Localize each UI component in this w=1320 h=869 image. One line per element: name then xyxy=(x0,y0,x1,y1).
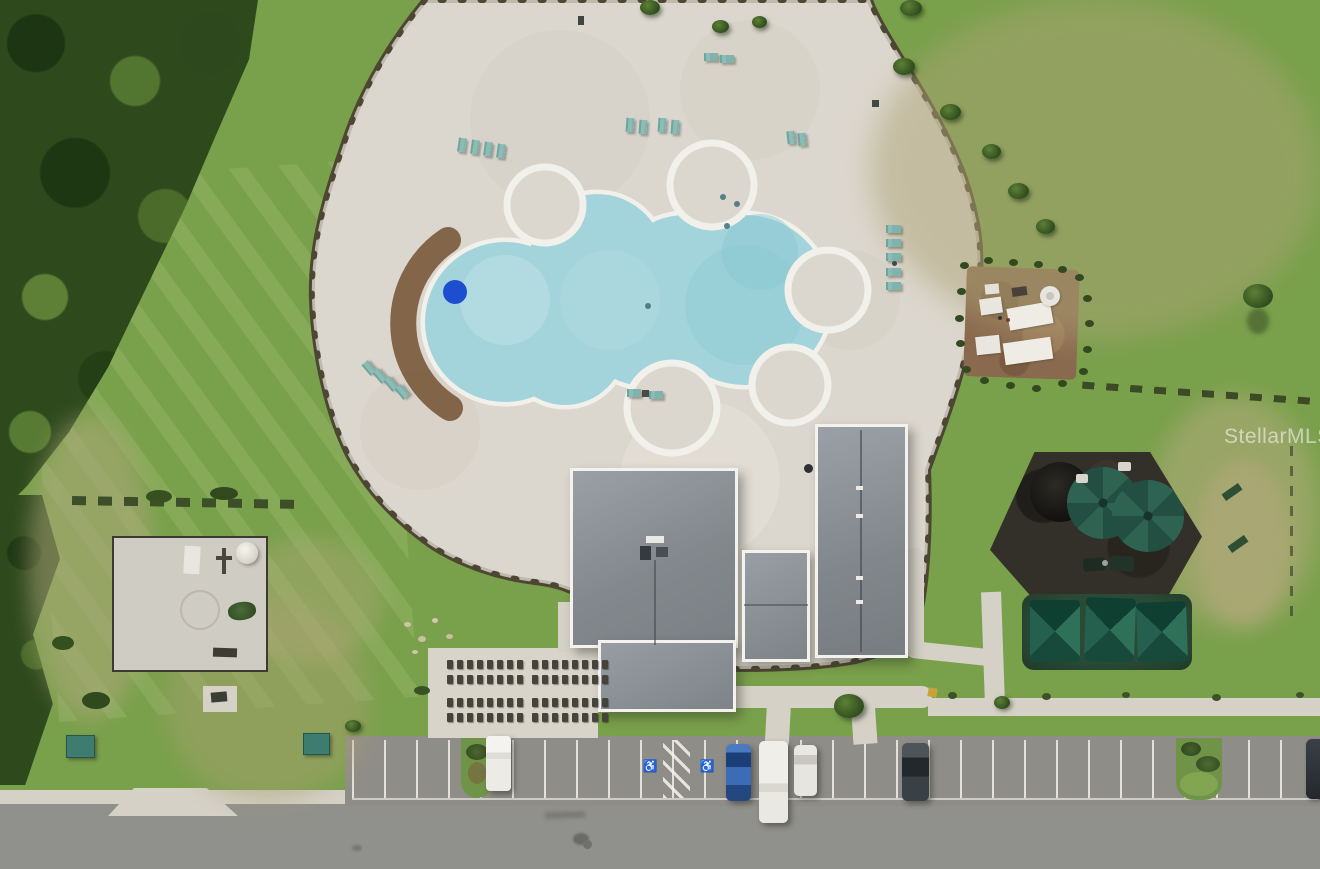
car-white-van xyxy=(759,741,788,823)
pole-crossbar xyxy=(216,556,232,560)
shade-canopy-pyramid xyxy=(1084,597,1136,663)
car-dark-edge xyxy=(1306,739,1320,799)
shrub xyxy=(1042,693,1051,700)
rock xyxy=(404,622,411,627)
stacked-chair xyxy=(477,675,483,684)
bush xyxy=(82,692,110,709)
play-equipment-detail xyxy=(1102,560,1108,566)
patio-shrub xyxy=(957,288,966,295)
shrub xyxy=(1296,692,1304,698)
stacked-chair xyxy=(572,675,578,684)
tree-shadow xyxy=(1247,308,1269,334)
pool-lounger xyxy=(649,391,663,399)
stacked-chair xyxy=(517,713,523,722)
roof-vent xyxy=(656,547,668,557)
stacked-chair xyxy=(507,675,513,684)
stacked-chair xyxy=(602,660,608,669)
car-blue xyxy=(726,744,751,801)
bush xyxy=(52,636,74,650)
hedge-line xyxy=(1082,382,1320,406)
pool-lounger xyxy=(786,131,795,145)
handicap-symbol: ♿ xyxy=(699,760,715,776)
play-equipment xyxy=(1110,555,1135,572)
patio-shrub xyxy=(980,377,989,384)
pool-lounger xyxy=(394,384,409,400)
stacked-chair xyxy=(447,675,453,684)
cabana-daybed xyxy=(979,297,1003,316)
pool-house-roof xyxy=(742,550,810,662)
roof-vent-round xyxy=(804,464,813,473)
shrub xyxy=(948,692,957,699)
stacked-chair xyxy=(592,675,598,684)
patio-shrub xyxy=(1075,274,1084,281)
tree xyxy=(982,144,1001,159)
stacked-chair xyxy=(602,675,608,684)
bush xyxy=(146,490,172,503)
roof-vent xyxy=(640,546,651,560)
tree xyxy=(712,20,729,33)
tree xyxy=(1008,183,1029,199)
patio-shrub xyxy=(1083,346,1092,353)
pool-lounger xyxy=(797,133,806,147)
island-mulch xyxy=(468,762,486,784)
pool-lounger xyxy=(886,253,901,261)
cabana-daybed xyxy=(975,335,1001,355)
fence-line xyxy=(1290,446,1293,626)
scene-objects-layer: ♿♿ xyxy=(0,0,1320,869)
stacked-chair xyxy=(457,660,463,669)
stacked-chair xyxy=(467,698,473,707)
equipment-cabinet xyxy=(183,546,200,575)
side-table xyxy=(642,390,649,397)
car-white-suv xyxy=(794,745,817,796)
walkway-pavilion-link xyxy=(907,641,992,667)
tree xyxy=(940,104,961,120)
tree xyxy=(994,696,1010,709)
stacked-chair xyxy=(582,660,588,669)
stacked-chair xyxy=(467,675,473,684)
stacked-chair xyxy=(457,675,463,684)
stacked-chair xyxy=(602,713,608,722)
manhole xyxy=(583,840,592,849)
person xyxy=(998,316,1002,320)
bush xyxy=(210,487,238,500)
stacked-chair xyxy=(542,660,548,669)
stacked-chair xyxy=(507,660,513,669)
person xyxy=(1006,318,1010,322)
rock xyxy=(418,636,426,642)
stacked-chair xyxy=(477,713,483,722)
shade-canopy-pyramid xyxy=(1030,600,1080,662)
stacked-chair xyxy=(487,698,493,707)
patio-shrub xyxy=(955,315,964,322)
watermark: StellarMLS xyxy=(1224,425,1320,449)
shrub xyxy=(1122,692,1130,698)
patio-shrub xyxy=(1034,261,1043,268)
stacked-chair xyxy=(592,713,598,722)
stacked-chair xyxy=(497,713,503,722)
stacked-chair xyxy=(582,713,588,722)
car-white-pickup xyxy=(486,736,511,791)
stacked-chair xyxy=(542,698,548,707)
stacked-chair xyxy=(507,698,513,707)
tree xyxy=(900,0,922,16)
pool-lounger xyxy=(496,144,506,159)
pool-lounger xyxy=(671,120,680,135)
road-mark xyxy=(545,811,585,818)
roof-ridge xyxy=(860,430,862,652)
patio-shrub xyxy=(1006,382,1015,389)
stacked-chair xyxy=(552,675,558,684)
shade-canopy-pyramid xyxy=(1136,601,1188,663)
stacked-chair xyxy=(457,713,463,722)
walkway-spur xyxy=(765,699,791,744)
clubhouse-roof-lower xyxy=(598,640,736,712)
pool-lounger xyxy=(483,142,493,157)
rock xyxy=(412,650,418,654)
roof-vent xyxy=(856,514,863,518)
stacked-chair xyxy=(477,698,483,707)
patio-shrub xyxy=(1083,295,1092,302)
cabana-daybed xyxy=(1003,337,1054,365)
stacked-chair xyxy=(447,698,453,707)
pool-lounger xyxy=(639,120,648,135)
stacked-chair xyxy=(572,660,578,669)
handicap-aisle xyxy=(663,740,690,798)
pool-lounger xyxy=(704,53,718,61)
stacked-chair xyxy=(447,660,453,669)
stacked-chair xyxy=(447,713,453,722)
pool-lounger xyxy=(470,140,480,155)
pole xyxy=(222,548,226,574)
pool-lounger xyxy=(457,138,467,153)
stacked-chair xyxy=(517,675,523,684)
patio-shrub xyxy=(1079,368,1088,375)
pool-lounger xyxy=(627,389,641,397)
roof-vent xyxy=(856,576,863,580)
tree xyxy=(1036,219,1055,234)
aerial-photo-community-amenity-center: ♿♿ StellarMLS xyxy=(0,0,1320,869)
roof-vent xyxy=(646,536,664,543)
stacked-chair xyxy=(532,675,538,684)
picnic-table xyxy=(1118,462,1131,471)
stacked-chair xyxy=(542,675,548,684)
patio-shrub xyxy=(1085,320,1094,327)
pool-lounger xyxy=(626,118,635,133)
stacked-chair xyxy=(487,660,493,669)
stacked-chair xyxy=(497,698,503,707)
rock xyxy=(432,618,438,623)
stacked-chair xyxy=(467,713,473,722)
stacked-chair xyxy=(542,713,548,722)
patio-shrub xyxy=(984,257,993,264)
trash-bin xyxy=(872,100,879,107)
stacked-chair xyxy=(487,675,493,684)
stacked-chair xyxy=(532,698,538,707)
roof-ridge xyxy=(654,560,656,645)
stacked-chair xyxy=(457,698,463,707)
stacked-chair xyxy=(487,713,493,722)
bench xyxy=(211,691,228,702)
pool-lounger xyxy=(886,282,901,290)
rock xyxy=(446,634,453,639)
pool-lounger xyxy=(720,55,734,63)
patio-shrub xyxy=(1058,266,1067,273)
stacked-chair xyxy=(552,698,558,707)
bush xyxy=(414,686,430,695)
person xyxy=(892,261,897,266)
stacked-chair xyxy=(467,660,473,669)
patio-table-center xyxy=(1046,292,1054,300)
patio-shrub xyxy=(1058,380,1067,387)
utility-box xyxy=(303,733,330,755)
stacked-chair xyxy=(562,698,568,707)
utility-box xyxy=(66,735,95,758)
pool-lounger xyxy=(886,239,901,247)
stacked-chair xyxy=(477,660,483,669)
patio-shrub xyxy=(960,262,969,269)
stacked-chair xyxy=(562,660,568,669)
stacked-chair xyxy=(582,698,588,707)
stacked-chair xyxy=(592,660,598,669)
roof-vent xyxy=(856,486,863,490)
tree xyxy=(640,0,660,15)
dome-structure xyxy=(236,542,258,564)
trash-bin xyxy=(578,16,584,25)
marker-sign xyxy=(927,687,937,697)
stacked-chair xyxy=(572,698,578,707)
walkway-pavilion-west xyxy=(981,592,1005,705)
island-grass xyxy=(1180,772,1218,796)
stacked-chair xyxy=(552,660,558,669)
stacked-chair xyxy=(582,675,588,684)
stacked-chair xyxy=(592,698,598,707)
stacked-chair xyxy=(602,698,608,707)
island-shrub xyxy=(1196,756,1220,772)
tree xyxy=(752,16,767,28)
pool-lounger xyxy=(886,225,901,233)
cabana-daybed xyxy=(985,283,1000,294)
stacked-chair xyxy=(532,660,538,669)
stacked-chair xyxy=(572,713,578,722)
tree xyxy=(345,720,361,732)
pool-lounger xyxy=(886,268,901,276)
shrub xyxy=(1212,694,1221,701)
stacked-chair xyxy=(562,675,568,684)
stacked-chair xyxy=(532,713,538,722)
handicap-symbol: ♿ xyxy=(642,760,658,776)
patio-shrub xyxy=(1032,385,1041,392)
patio-shrub xyxy=(1009,259,1018,266)
stacked-chair xyxy=(552,713,558,722)
equipment-strip xyxy=(213,648,237,658)
picnic-table xyxy=(1076,474,1088,483)
person xyxy=(653,458,659,465)
roof-ridge xyxy=(744,604,808,606)
stacked-chair xyxy=(562,713,568,722)
stacked-chair xyxy=(517,660,523,669)
car-dark-gray xyxy=(902,743,929,801)
stacked-chair xyxy=(497,675,503,684)
tree xyxy=(834,694,864,718)
patio-shrub xyxy=(962,366,971,373)
island-shrub xyxy=(466,744,488,760)
stacked-chair xyxy=(507,713,513,722)
island-shrub xyxy=(1181,742,1201,756)
tree xyxy=(1243,284,1273,308)
umbrella-green-icon xyxy=(1112,480,1184,552)
ground-ring xyxy=(180,590,220,630)
tree xyxy=(893,58,915,75)
stacked-chair xyxy=(517,698,523,707)
road-mark xyxy=(352,845,362,851)
pool-lounger xyxy=(658,118,667,133)
patio-shrub xyxy=(956,340,965,347)
stacked-chair xyxy=(497,660,503,669)
roof-vent xyxy=(856,600,863,604)
